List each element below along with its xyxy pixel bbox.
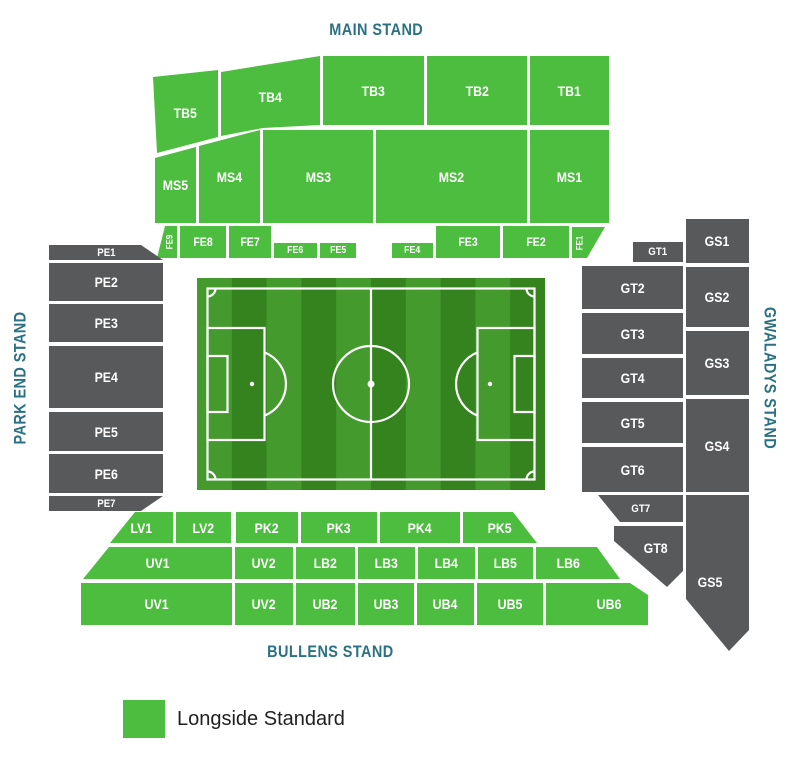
- section-label: GS3: [705, 355, 730, 371]
- section-label: FE3: [458, 235, 477, 249]
- section-label: LB4: [435, 555, 458, 571]
- bullens-stand-title-text: BULLENS STAND: [267, 642, 393, 662]
- section-label: GS5: [698, 574, 723, 590]
- section-fe4[interactable]: FE4: [392, 243, 433, 258]
- section-ms1[interactable]: MS1: [530, 130, 609, 223]
- section-label: PE5: [94, 424, 117, 440]
- section-label: PK4: [408, 520, 432, 536]
- section-fe1[interactable]: FE1: [572, 227, 605, 258]
- section-pk3[interactable]: PK3: [301, 512, 377, 543]
- section-label: FE7: [240, 235, 259, 249]
- section-pe7[interactable]: PE7: [49, 496, 163, 511]
- section-label: PE4: [94, 369, 117, 385]
- section-uv1-lower[interactable]: UV1: [81, 583, 232, 625]
- section-label: FE8: [193, 235, 212, 249]
- section-label: UB6: [597, 596, 622, 612]
- section-ub5[interactable]: UB5: [477, 583, 543, 625]
- section-label: PE6: [94, 466, 117, 482]
- section-label: UB3: [374, 596, 399, 612]
- stadium-seating-map: MAIN STAND PARK END STAND GWALADYS STAND…: [0, 0, 798, 766]
- section-fe7[interactable]: FE7: [229, 226, 271, 258]
- section-fe3[interactable]: FE3: [436, 226, 500, 258]
- section-label: TB4: [259, 89, 282, 105]
- section-pe5[interactable]: PE5: [49, 412, 163, 451]
- section-label: PK3: [327, 520, 351, 536]
- section-lb3[interactable]: LB3: [358, 547, 415, 579]
- pitch-graphic: [197, 278, 545, 490]
- section-ms3[interactable]: MS3: [263, 130, 373, 223]
- section-ub4[interactable]: UB4: [417, 583, 474, 625]
- section-tb4[interactable]: TB4: [221, 56, 320, 137]
- section-label: LB5: [494, 555, 517, 571]
- bullens-stand-title: BULLENS STAND: [230, 640, 430, 664]
- section-ms2[interactable]: MS2: [376, 130, 527, 223]
- section-label: UB2: [313, 596, 338, 612]
- section-gs3[interactable]: GS3: [686, 331, 749, 395]
- section-ub3[interactable]: UB3: [358, 583, 414, 625]
- section-gt5[interactable]: GT5: [582, 402, 683, 443]
- section-lv1[interactable]: LV1: [110, 512, 173, 543]
- section-uv1-upper[interactable]: UV1: [83, 547, 232, 579]
- main-stand-title-text: MAIN STAND: [329, 20, 423, 40]
- section-label: GT2: [621, 280, 645, 296]
- section-gs4[interactable]: GS4: [686, 399, 749, 492]
- section-label: LV2: [193, 520, 215, 536]
- section-label: PK2: [255, 520, 279, 536]
- section-pk5[interactable]: PK5: [463, 512, 537, 543]
- section-label: GS2: [705, 289, 730, 305]
- section-label: GT4: [621, 370, 645, 386]
- section-fe9[interactable]: FE9: [157, 226, 177, 258]
- section-pe1[interactable]: PE1: [49, 245, 163, 260]
- section-fe5[interactable]: FE5: [320, 243, 356, 258]
- legend-label: Longside Standard: [177, 700, 345, 738]
- section-label: MS1: [557, 169, 582, 185]
- section-label: MS4: [217, 169, 242, 185]
- section-label: MS2: [439, 169, 464, 185]
- section-label: PE2: [94, 274, 117, 290]
- section-label: TB5: [174, 105, 197, 121]
- section-gs1[interactable]: GS1: [686, 219, 749, 263]
- section-lb6[interactable]: LB6: [536, 547, 620, 579]
- section-tb5[interactable]: TB5: [153, 70, 218, 155]
- section-tb1[interactable]: TB1: [530, 56, 609, 125]
- section-label: GT5: [621, 415, 645, 431]
- section-label: FE5: [330, 245, 346, 256]
- section-gt7[interactable]: GT7: [598, 495, 683, 522]
- section-uv2-lower[interactable]: UV2: [235, 583, 293, 625]
- section-pe6[interactable]: PE6: [49, 454, 163, 493]
- section-label: UV2: [252, 555, 276, 571]
- section-label: GT1: [649, 246, 668, 258]
- section-pe3[interactable]: PE3: [49, 304, 163, 342]
- section-label: LB6: [556, 555, 579, 571]
- section-gt1[interactable]: GT1: [633, 242, 683, 262]
- main-stand-title: MAIN STAND: [276, 18, 476, 42]
- section-label: LB2: [314, 555, 337, 571]
- section-label: FE9: [164, 235, 174, 250]
- section-label: FE1: [575, 235, 585, 250]
- section-label: UV2: [252, 596, 276, 612]
- section-pe4[interactable]: PE4: [49, 346, 163, 408]
- section-label: UV1: [145, 596, 169, 612]
- section-label: GT6: [621, 462, 645, 478]
- section-label: PE1: [97, 247, 115, 259]
- section-tb2[interactable]: TB2: [427, 56, 527, 125]
- section-label: LB3: [375, 555, 398, 571]
- section-ub6[interactable]: UB6: [546, 583, 648, 625]
- park-end-stand-title: PARK END STAND: [2, 278, 38, 478]
- football-pitch: [197, 278, 545, 490]
- section-label: UB4: [433, 596, 458, 612]
- section-ms4[interactable]: MS4: [199, 130, 260, 223]
- section-pe2[interactable]: PE2: [49, 263, 163, 301]
- section-label: MS5: [163, 177, 188, 193]
- section-label: TB2: [465, 83, 488, 99]
- section-fe6[interactable]: FE6: [274, 243, 317, 258]
- section-label: GS1: [705, 233, 730, 249]
- section-lb4[interactable]: LB4: [418, 547, 475, 579]
- section-pk4[interactable]: PK4: [380, 512, 460, 543]
- section-gs5[interactable]: GS5: [686, 495, 749, 651]
- section-label: UV1: [146, 555, 170, 571]
- legend-swatch-longside-standard: [123, 700, 165, 738]
- section-label: GT3: [621, 326, 645, 342]
- section-fe2[interactable]: FE2: [503, 226, 569, 258]
- section-gt2[interactable]: GT2: [582, 266, 683, 309]
- section-gt4[interactable]: GT4: [582, 358, 683, 398]
- section-label: GT8: [644, 540, 668, 556]
- section-tb3[interactable]: TB3: [323, 56, 424, 125]
- section-lv2[interactable]: LV2: [176, 512, 231, 543]
- section-gt6[interactable]: GT6: [582, 447, 683, 492]
- section-label: FE6: [287, 245, 303, 256]
- section-pk2[interactable]: PK2: [236, 512, 298, 543]
- section-label: LV1: [131, 520, 153, 536]
- section-label: MS3: [305, 169, 330, 185]
- section-gt8[interactable]: GT8: [614, 526, 683, 587]
- gwaladys-stand-title-text: GWALADYS STAND: [760, 307, 780, 449]
- section-uv2-upper[interactable]: UV2: [235, 547, 293, 579]
- section-label: TB3: [362, 83, 385, 99]
- section-label: PK5: [488, 520, 512, 536]
- section-label: GS4: [705, 438, 730, 454]
- section-label: TB1: [558, 83, 581, 99]
- section-label: FE2: [526, 235, 545, 249]
- section-gt3[interactable]: GT3: [582, 313, 683, 354]
- section-label: FE4: [404, 245, 420, 256]
- section-label: PE3: [94, 315, 117, 331]
- section-ub2[interactable]: UB2: [296, 583, 355, 625]
- section-label: UB5: [498, 596, 523, 612]
- section-gs2[interactable]: GS2: [686, 267, 749, 327]
- section-lb5[interactable]: LB5: [478, 547, 533, 579]
- gwaladys-stand-title: GWALADYS STAND: [752, 288, 788, 468]
- section-fe8[interactable]: FE8: [180, 226, 226, 258]
- section-ms5[interactable]: MS5: [155, 147, 196, 223]
- section-label: PE7: [97, 498, 115, 510]
- park-end-stand-title-text: PARK END STAND: [10, 311, 30, 444]
- section-label: GT7: [631, 503, 650, 515]
- section-lb2[interactable]: LB2: [296, 547, 355, 579]
